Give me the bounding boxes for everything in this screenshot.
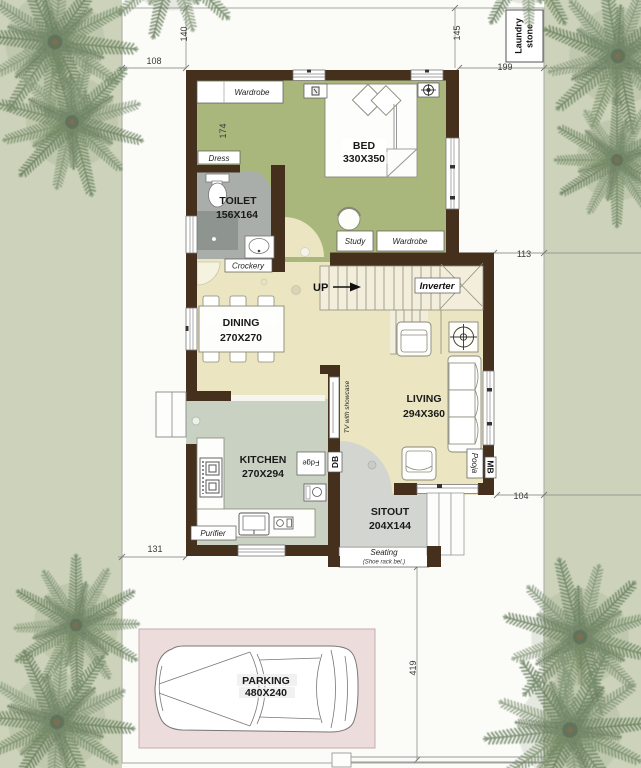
svg-text:108: 108 bbox=[146, 56, 161, 66]
svg-text:330X350: 330X350 bbox=[343, 153, 385, 165]
svg-text:KITCHEN: KITCHEN bbox=[240, 454, 287, 466]
svg-text:Pooja: Pooja bbox=[470, 453, 479, 474]
svg-text:Purifier: Purifier bbox=[200, 529, 226, 538]
svg-text:113: 113 bbox=[517, 249, 531, 259]
svg-text:145: 145 bbox=[452, 25, 462, 40]
svg-text:Wardrobe: Wardrobe bbox=[235, 88, 271, 97]
svg-text:Fdge: Fdge bbox=[302, 459, 319, 468]
svg-text:DINING: DINING bbox=[223, 317, 260, 329]
svg-text:BED: BED bbox=[353, 140, 376, 152]
svg-text:480X240: 480X240 bbox=[245, 687, 287, 699]
svg-text:UP: UP bbox=[313, 282, 328, 294]
svg-text:270X294: 270X294 bbox=[242, 468, 284, 480]
svg-text:174: 174 bbox=[218, 123, 228, 138]
svg-text:TV with showcase: TV with showcase bbox=[344, 380, 351, 433]
svg-text:Crockery: Crockery bbox=[232, 262, 265, 271]
svg-text:Wardrobe: Wardrobe bbox=[393, 237, 429, 246]
svg-text:(Shoe rack bel.): (Shoe rack bel.) bbox=[363, 560, 405, 566]
svg-text:Study: Study bbox=[345, 237, 366, 246]
svg-text:SITOUT: SITOUT bbox=[371, 506, 410, 518]
svg-text:MB: MB bbox=[486, 460, 496, 473]
svg-text:270X270: 270X270 bbox=[220, 332, 262, 344]
svg-text:131: 131 bbox=[147, 544, 162, 554]
svg-text:Dress: Dress bbox=[209, 154, 230, 163]
svg-text:419: 419 bbox=[408, 660, 418, 675]
svg-text:Laundry: Laundry bbox=[514, 18, 524, 54]
svg-text:156X164: 156X164 bbox=[216, 209, 258, 221]
svg-text:DB: DB bbox=[330, 456, 340, 468]
svg-text:Inverter: Inverter bbox=[420, 281, 456, 292]
svg-text:199: 199 bbox=[497, 62, 512, 72]
svg-text:PARKING: PARKING bbox=[242, 675, 290, 687]
svg-text:LIVING: LIVING bbox=[406, 393, 441, 405]
svg-text:294X360: 294X360 bbox=[403, 408, 445, 420]
svg-text:TOILET: TOILET bbox=[219, 195, 257, 207]
svg-text:Seating: Seating bbox=[370, 548, 398, 557]
svg-text:104: 104 bbox=[513, 491, 528, 501]
svg-text:204X144: 204X144 bbox=[369, 520, 411, 532]
